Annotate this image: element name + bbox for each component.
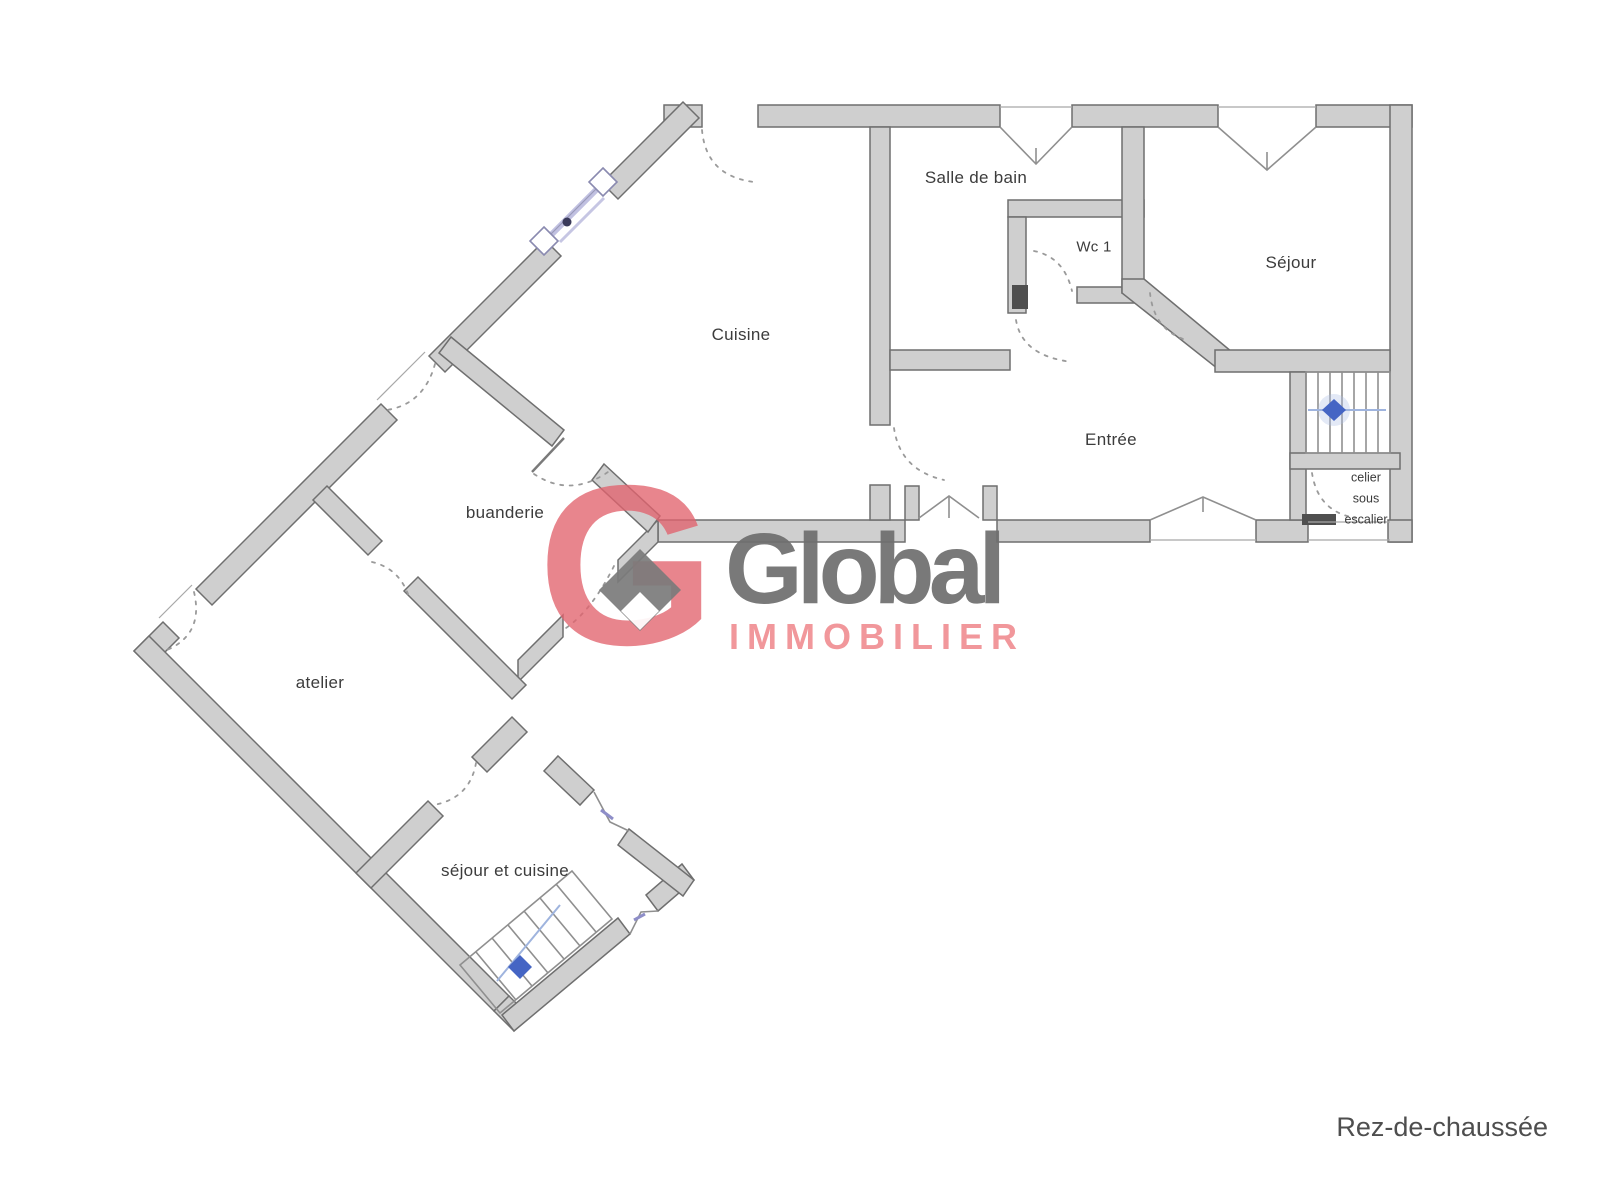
room-label-atelier: atelier	[296, 673, 344, 693]
room-label-sejour-et-cuisine: séjour et cuisine	[441, 861, 569, 881]
window-fixture	[530, 168, 617, 255]
stairs-arrow-icon	[508, 955, 532, 979]
closet-label-line1: celier	[1344, 468, 1387, 489]
exterior-walls-main	[134, 102, 1412, 1031]
room-label-wc: Wc 1	[1076, 239, 1111, 256]
room-label-buanderie: buanderie	[466, 503, 544, 523]
room-label-salle-de-bain: Salle de bain	[925, 168, 1027, 188]
floor-plan-page: Salle de bain Wc 1 Séjour Cuisine Entrée…	[0, 0, 1600, 1179]
floor-title: Rez-de-chaussée	[1336, 1112, 1548, 1143]
closet-label: celier sous escalier	[1344, 468, 1387, 531]
interior-walls	[313, 127, 1400, 699]
room-label-sejour: Séjour	[1266, 253, 1317, 273]
closet-label-line3: escalier	[1344, 510, 1387, 531]
floor-plan-drawing	[0, 0, 1600, 1179]
room-label-cuisine: Cuisine	[712, 325, 771, 345]
closet-label-line2: sous	[1344, 489, 1387, 510]
room-label-entree: Entrée	[1085, 430, 1137, 450]
